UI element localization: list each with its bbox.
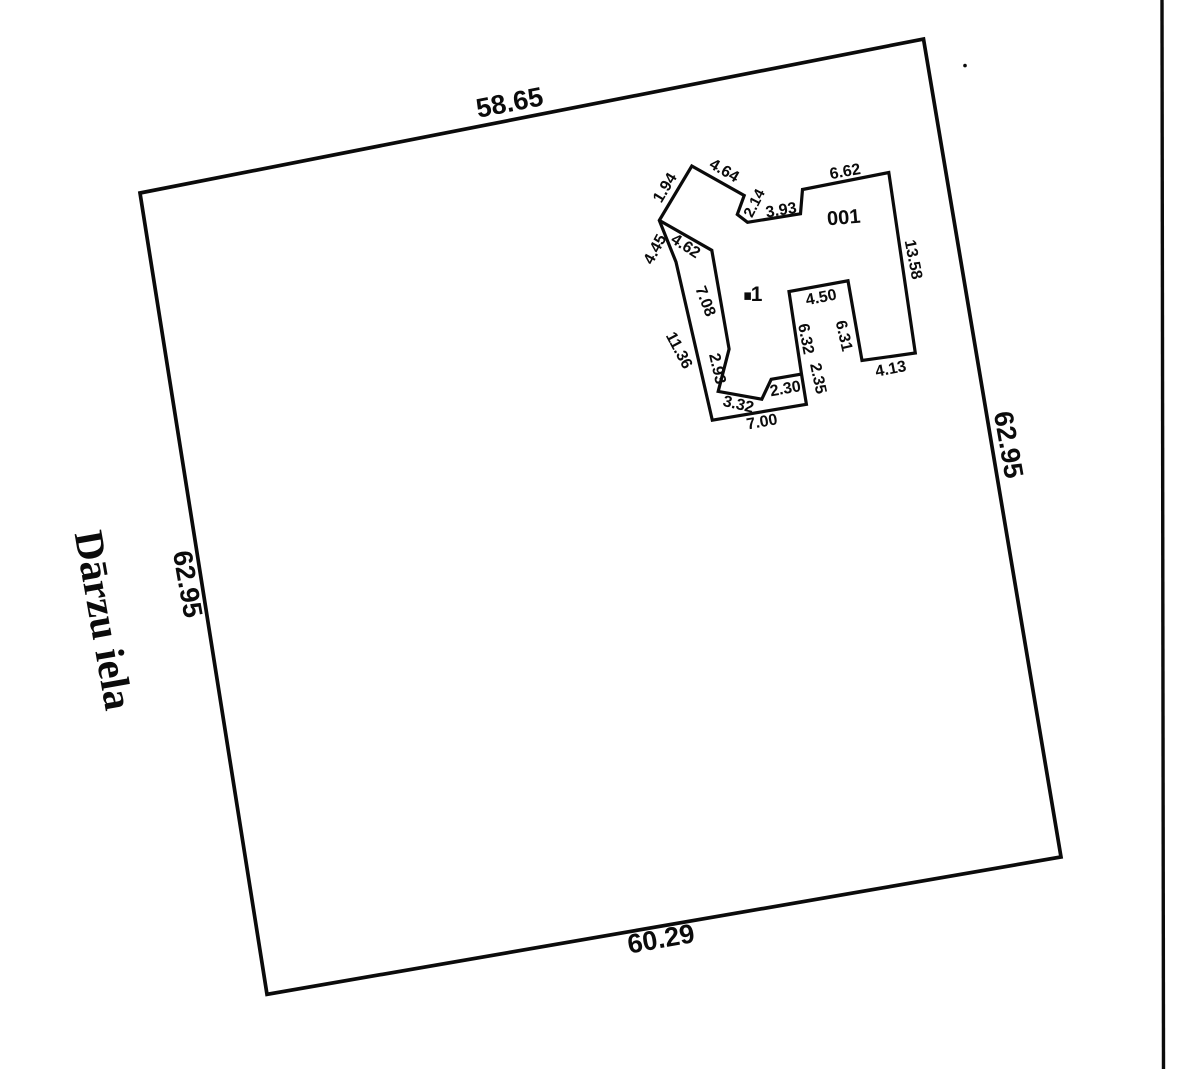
svg-text:001: 001 [826,206,861,231]
svg-text:1: 1 [751,283,763,306]
